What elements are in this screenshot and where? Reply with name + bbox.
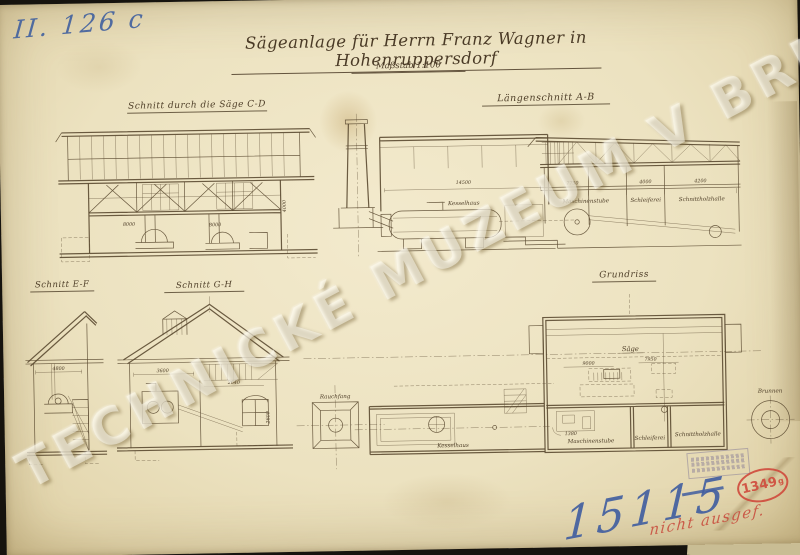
- dim-text: 4000: [638, 179, 651, 185]
- paper-stain: [56, 41, 143, 94]
- dim-text: 8000: [123, 222, 135, 228]
- dim-text: 3600: [156, 368, 168, 374]
- room-label: Schleiferei: [630, 197, 661, 204]
- room-label: Maschinenstube: [561, 198, 609, 205]
- dim-text: 1380: [565, 431, 577, 437]
- drawing-section-cd: 8000 8000 4000: [57, 117, 317, 263]
- dim-text: 7750: [566, 180, 578, 186]
- room-label: Rauchfang: [319, 394, 351, 401]
- archive-number: II. 126 c: [13, 4, 147, 45]
- stamp-suffix: g: [777, 476, 785, 486]
- room-label: Maschinenstube: [567, 438, 615, 445]
- stamp-number: 1349: [740, 475, 779, 498]
- label-plan: Grundriss: [592, 270, 656, 283]
- room-label: Schnittholzhalle: [679, 196, 726, 203]
- plan-linework: [294, 291, 795, 470]
- dim-text: 4200: [693, 178, 706, 184]
- dim-text: 4000: [282, 200, 288, 213]
- dim-text: 2600: [265, 411, 271, 424]
- drawing-section-ef: 4800: [24, 299, 122, 469]
- inventory-number: 15115: [562, 465, 730, 552]
- drawing-long-section-ab: 14500 Kesselhaus 7750 4000 4200 Maschine…: [325, 105, 746, 264]
- label-section-cd: Schnitt durch die Säge C-D: [127, 99, 267, 113]
- dim-text: 9000: [582, 361, 594, 367]
- dim-text: 8000: [209, 222, 221, 228]
- room-label: Kesselhaus: [447, 201, 480, 208]
- dim-text: 4800: [51, 366, 64, 372]
- label-section-gh: Schnitt G-H: [164, 280, 244, 293]
- drawing-section-gh: 3600 2640 2600: [114, 293, 295, 468]
- room-label: Brunnen: [757, 388, 783, 394]
- drawing-scale: Maßstab 1:100: [351, 60, 465, 74]
- section-ef-linework: [25, 311, 108, 464]
- room-label: Schleiferei: [635, 435, 666, 442]
- label-long-section-ab: Längenschnitt A-B: [482, 91, 610, 106]
- label-section-ef: Schnitt E-F: [30, 279, 94, 292]
- dim-text: 2640: [227, 380, 240, 386]
- drawing-plan: Rauchfang Kesselhaus Säge 9000 7950 1380…: [292, 291, 795, 475]
- drawing-sheet: II. 126 c Sägeanlage für Herrn Franz Wag…: [0, 0, 800, 555]
- section-cd-linework: [55, 128, 317, 262]
- room-label: Schnittholzhalle: [675, 431, 722, 438]
- dim-text: 14500: [456, 180, 471, 186]
- paper-stain: [381, 472, 512, 530]
- room-label: Kesselhaus: [436, 443, 469, 450]
- dim-text: 7950: [644, 357, 656, 363]
- room-label: Säge: [622, 345, 639, 353]
- section-gh-linework: [114, 295, 293, 461]
- long-section-linework: [331, 107, 741, 258]
